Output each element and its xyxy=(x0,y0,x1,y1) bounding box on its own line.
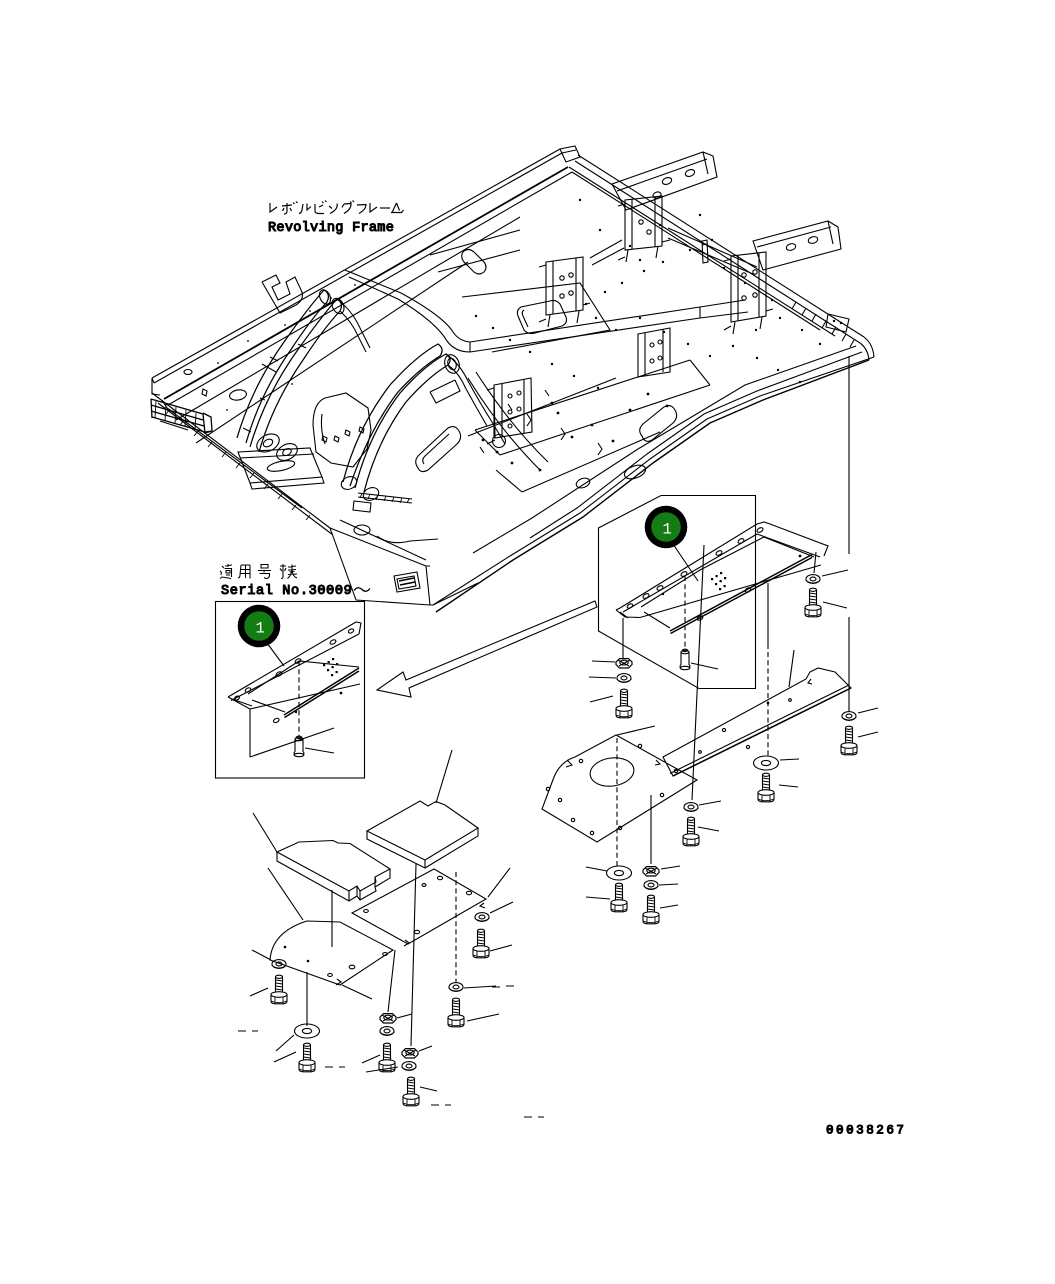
svg-text:1: 1 xyxy=(256,620,265,638)
svg-text:Serial No.30009: Serial No.30009 xyxy=(221,584,352,599)
svg-text:1: 1 xyxy=(663,521,672,539)
svg-text:Revolving Frame: Revolving Frame xyxy=(268,221,394,236)
svg-text:00038267: 00038267 xyxy=(826,1124,906,1138)
